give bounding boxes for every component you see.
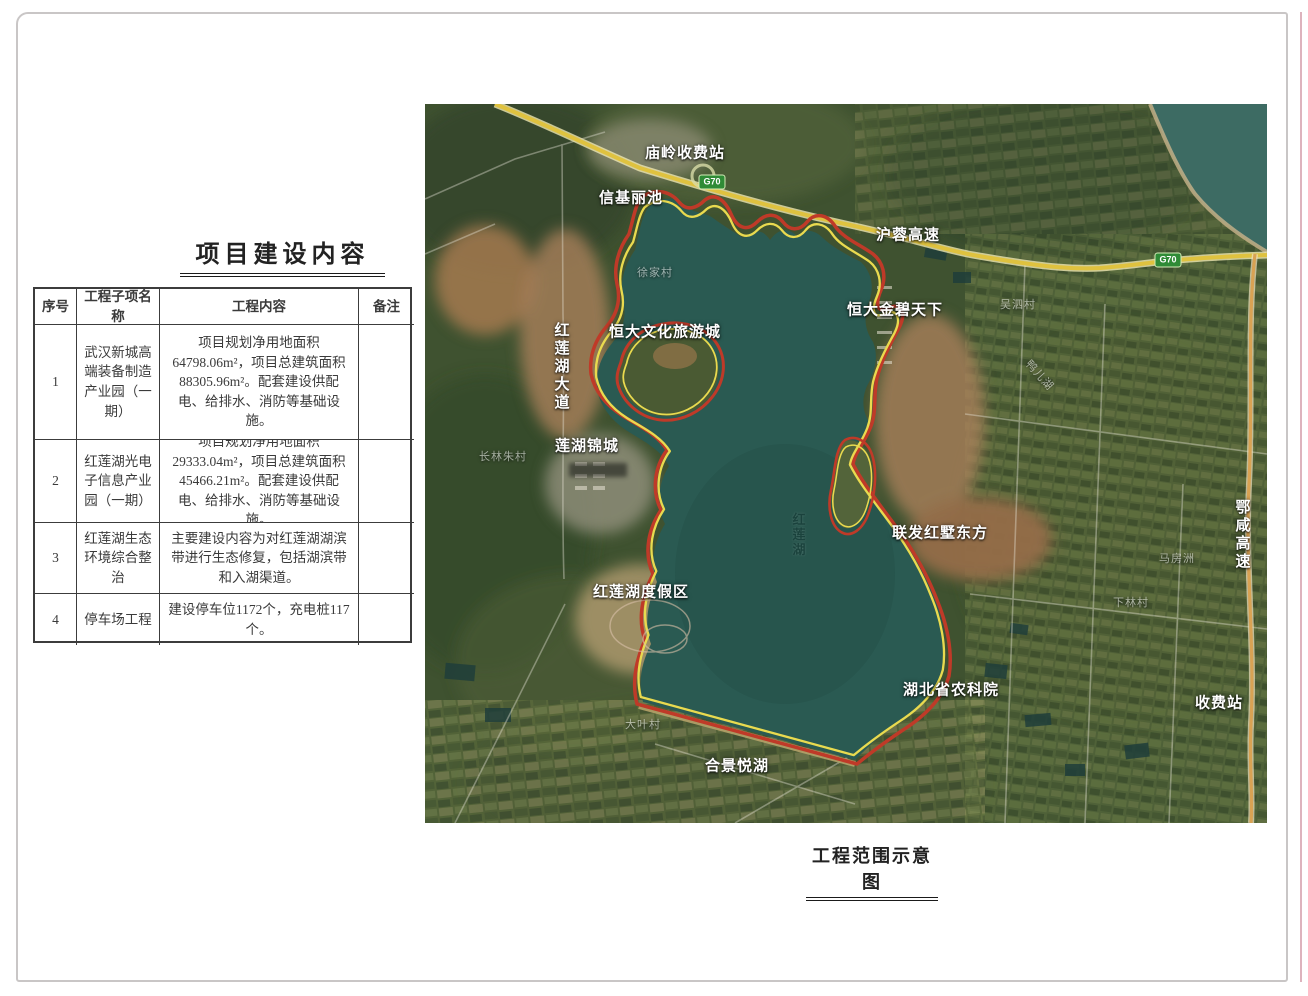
map-label-honglianhu-avenue: 红莲湖大道 bbox=[551, 322, 572, 412]
map-label-hengda-culture: 恒大文化旅游城 bbox=[609, 321, 721, 342]
peninsula-clearing bbox=[653, 343, 697, 369]
g70-highway-shield-west: G70 bbox=[698, 175, 725, 190]
map-caption: 工程范围示意图 bbox=[806, 842, 938, 901]
table-row-4-content: 建设停车位1172个，充电桩117个。 bbox=[160, 594, 359, 645]
map-label-honglian-lake: 红莲湖 bbox=[789, 513, 808, 558]
satellite-basemap bbox=[425, 104, 1267, 823]
map-label-hurong-expwy: 沪蓉高速 bbox=[876, 224, 940, 245]
table-row-3-name: 红莲湖生态环境综合整治 bbox=[77, 523, 160, 594]
table-row-3-note bbox=[359, 523, 414, 594]
table-row-1-content: 项目规划净用地面积64798.06m²，项目总建筑面积88305.96m²。配套… bbox=[160, 325, 359, 440]
table-title: 项目建设内容 bbox=[180, 234, 385, 277]
map-label-hengda-jinbi: 恒大金碧天下 bbox=[847, 299, 943, 320]
map-label-daye-village: 大叶村 bbox=[625, 716, 661, 732]
blurred-basemap-label bbox=[569, 463, 627, 477]
table-row-1-no: 1 bbox=[35, 325, 77, 440]
table-row-3-no: 3 bbox=[35, 523, 77, 594]
map-label-toll-station: 收费站 bbox=[1195, 692, 1243, 713]
peninsula-hengda-culture bbox=[618, 330, 718, 417]
project-content-table: 序号 工程子项名称 工程内容 备注 1 武汉新城高端装备制造产业园（一期） 项目… bbox=[33, 287, 412, 643]
map-label-hejing-yuehu: 合景悦湖 bbox=[705, 755, 769, 776]
table-row-2-no: 2 bbox=[35, 440, 77, 523]
col-header-note: 备注 bbox=[359, 289, 414, 325]
col-header-no: 序号 bbox=[35, 289, 77, 325]
g70-highway-shield-east: G70 bbox=[1154, 253, 1181, 268]
document-page: { "page": { "background": "#ffffff", "fr… bbox=[0, 0, 1308, 996]
map-label-xinji-lichi: 信基丽池 bbox=[599, 187, 663, 208]
map-label-resort-area: 红莲湖度假区 bbox=[593, 581, 689, 602]
map-label-miaoling-toll: 庙岭收费站 bbox=[645, 142, 725, 163]
table-row-1-note bbox=[359, 325, 414, 440]
table-row-2-note bbox=[359, 440, 414, 523]
table-row-3-content: 主要建设内容为对红莲湖湖滨带进行生态修复，包括湖滨带和入湖渠道。 bbox=[160, 523, 359, 594]
map-label-lianfa-hongshu: 联发红墅东方 bbox=[892, 522, 988, 543]
map-label-wusi-village: 吴泗村 bbox=[1000, 296, 1036, 312]
table-row-4-note bbox=[359, 594, 414, 645]
table-row-1-name: 武汉新城高端装备制造产业园（一期） bbox=[77, 325, 160, 440]
table-row-2-name: 红莲湖光电子信息产业园（一期） bbox=[77, 440, 160, 523]
project-scope-satellite-map: 庙岭收费站 信基丽池 沪蓉高速 恒大金碧天下 恒大文化旅游城 红莲湖大道 莲湖锦… bbox=[425, 104, 1267, 823]
table-row-4-no: 4 bbox=[35, 594, 77, 645]
map-label-lianhu-jincheng: 莲湖锦城 bbox=[555, 435, 619, 456]
col-header-name: 工程子项名称 bbox=[77, 289, 160, 325]
page-border-right-accent bbox=[1300, 12, 1302, 982]
table-row-4-name: 停车场工程 bbox=[77, 594, 160, 645]
map-label-xialin-village: 下林村 bbox=[1113, 594, 1149, 610]
map-label-xujia-village: 徐家村 bbox=[637, 264, 673, 280]
map-label-agri-academy: 湖北省农科院 bbox=[903, 679, 999, 700]
map-label-mafangzhou: 马房洲 bbox=[1159, 550, 1195, 566]
table-row-2-content: 项目规划净用地面积29333.04m²，项目总建筑面积45466.21m²。配套… bbox=[160, 440, 359, 523]
map-label-exian-expwy: 鄂咸高速 bbox=[1232, 499, 1253, 571]
map-label-changlinzhu-village: 长林朱村 bbox=[479, 448, 527, 464]
col-header-content: 工程内容 bbox=[160, 289, 359, 325]
